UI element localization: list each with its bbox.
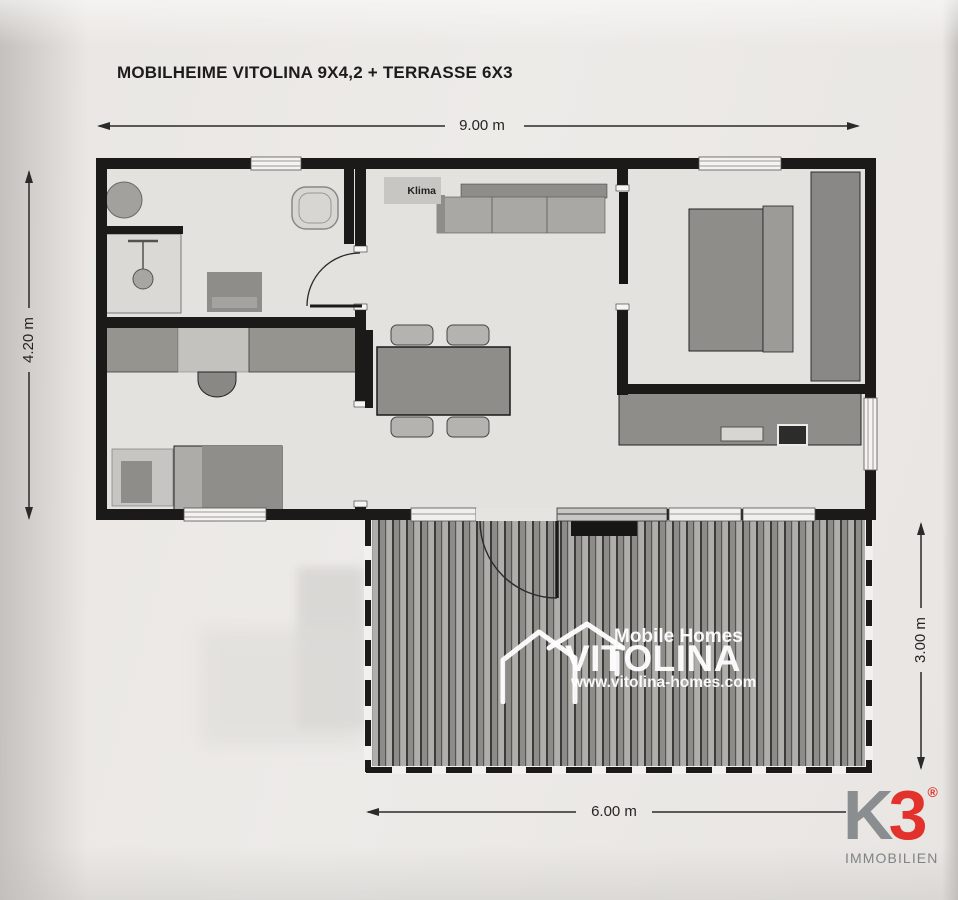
klima-unit-label: Klima xyxy=(384,177,441,204)
watermark-website: www.vitolina-homes.com xyxy=(571,674,756,692)
bed-side xyxy=(763,206,793,352)
window xyxy=(411,508,476,521)
sink xyxy=(721,427,763,441)
chair xyxy=(447,417,489,437)
vitolina-watermark: Mobile Homes VITOLINA www.vitolina-homes… xyxy=(497,610,757,710)
chair xyxy=(391,325,433,345)
nightstand-drawer xyxy=(121,461,152,503)
k3-digit-3: 3 xyxy=(889,776,923,854)
wardrobe xyxy=(811,172,860,381)
window xyxy=(669,508,741,521)
dimension-label-house-width: 9.00 m xyxy=(447,116,517,136)
terrace-door-opening xyxy=(476,508,557,521)
wardrobe xyxy=(249,327,356,372)
registered-trademark-icon: ® xyxy=(928,784,938,800)
washbasin xyxy=(106,182,142,218)
terrace-step xyxy=(571,520,637,536)
window xyxy=(743,508,815,521)
dining-table xyxy=(377,347,510,415)
bed-blanket xyxy=(202,446,282,512)
bath-cabinet-front xyxy=(212,297,257,308)
dimension-label-terrace-width: 6.00 m xyxy=(579,802,649,822)
sofa xyxy=(437,197,605,233)
mobile-home xyxy=(96,157,877,521)
window xyxy=(184,508,266,521)
desk xyxy=(178,327,249,372)
stove xyxy=(778,425,807,445)
sofa-back xyxy=(461,184,607,198)
k3-subtitle: IMMOBILIEN xyxy=(845,850,955,866)
double-bed xyxy=(689,209,763,351)
k3-letter-k: K xyxy=(843,776,889,854)
door-leaf xyxy=(619,192,628,284)
chair xyxy=(447,325,489,345)
window xyxy=(699,157,781,170)
window xyxy=(251,157,301,170)
chair xyxy=(391,417,433,437)
sliding-door xyxy=(557,508,667,521)
door-leaf xyxy=(365,330,373,408)
dimension-label-terrace-depth: 3.00 m xyxy=(911,605,931,675)
kitchen xyxy=(619,392,861,445)
scanned-floor-plan-page: MOBILHEIME VITOLINA 9X4,2 + TERRASSE 6X3 xyxy=(0,0,958,900)
window xyxy=(864,398,877,470)
k3-immobilien-logo: K3® IMMOBILIEN xyxy=(843,782,955,866)
watermark-brand: VITOLINA xyxy=(565,640,741,677)
k3-logo-text: K3® xyxy=(843,782,955,849)
dimension-label-house-depth: 4.20 m xyxy=(19,305,39,375)
wardrobe xyxy=(106,327,178,372)
